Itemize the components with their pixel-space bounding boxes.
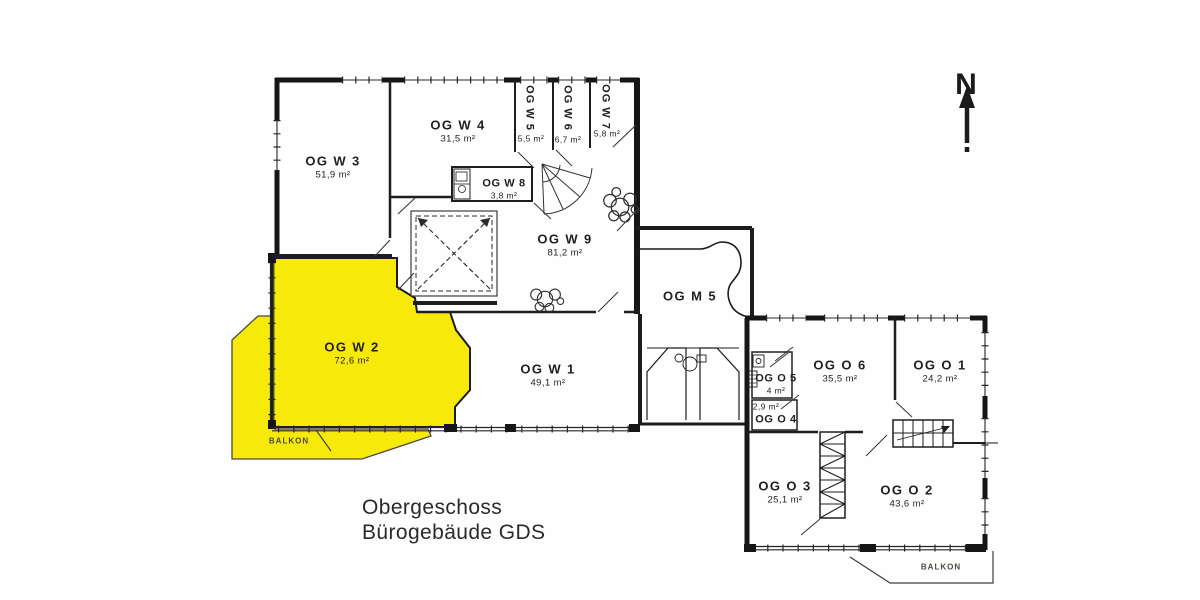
room-label-ogw2: OG W 2 72,6 m² xyxy=(324,341,379,368)
room-name: OG W 2 xyxy=(324,341,379,356)
room-area-ogw5: 5,5 m² xyxy=(518,134,545,145)
balcony-west-label: BALKON xyxy=(269,437,309,446)
plant-icon xyxy=(531,289,564,312)
winder-stair-icon xyxy=(542,164,592,214)
corridor-ogm5 xyxy=(637,228,752,318)
room-area: 72,6 m² xyxy=(324,357,379,368)
north-label: N xyxy=(955,68,977,102)
room-area-ogw7: 5,8 m² xyxy=(594,129,621,140)
stairwell-center xyxy=(640,314,749,424)
room-label-ogo4: OG O 4 xyxy=(755,414,797,427)
room-name: OG W 4 xyxy=(430,119,485,134)
room-area: 31,5 m² xyxy=(430,135,485,146)
plan-title-line1: Obergeschoss xyxy=(362,496,545,521)
room-name: OG W 5 xyxy=(523,85,536,131)
room-area: 5,8 m² xyxy=(594,130,621,140)
room-name: OG W 8 xyxy=(482,177,525,190)
room-label-ogo6: OG O 6 35,5 m² xyxy=(813,359,866,386)
room-label-ogw9: OG W 9 81,2 m² xyxy=(537,233,592,260)
room-area: 43,6 m² xyxy=(880,500,933,511)
atrium-void xyxy=(411,211,497,296)
room-label-ogw6: OG W 6 xyxy=(561,85,574,131)
room-name: OG W 6 xyxy=(561,85,574,131)
room-area: 49,1 m² xyxy=(520,379,575,390)
room-area: 81,2 m² xyxy=(537,249,592,260)
stair-grid xyxy=(893,420,953,447)
room-area-ogo4: 2,9 m² xyxy=(753,402,780,413)
room-label-ogw3: OG W 3 51,9 m² xyxy=(305,155,360,182)
room-name: OG O 5 xyxy=(755,372,797,385)
room-label-ogo3: OG O 3 25,1 m² xyxy=(758,480,811,507)
room-area: 2,9 m² xyxy=(753,403,780,413)
room-area: 5,5 m² xyxy=(518,135,545,145)
room-name: OG W 1 xyxy=(520,363,575,378)
room-area: 6,7 m² xyxy=(555,136,582,146)
room-name: OG O 2 xyxy=(880,484,933,499)
room-area: 3,8 m² xyxy=(482,191,525,201)
room-label-ogw8: OG W 8 3,8 m² xyxy=(482,177,525,200)
room-label-ogw1: OG W 1 49,1 m² xyxy=(520,363,575,390)
balcony-east-label: BALKON xyxy=(921,563,961,572)
room-name: OG M 5 xyxy=(663,290,717,305)
room-label-ogm5: OG M 5 xyxy=(663,290,717,305)
plant-icon xyxy=(604,188,639,222)
room-area: 24,2 m² xyxy=(913,375,966,386)
room-area: 35,5 m² xyxy=(813,375,866,386)
room-area: 51,9 m² xyxy=(305,171,360,182)
stair-ladder xyxy=(820,432,845,518)
room-label-ogw4: OG W 4 31,5 m² xyxy=(430,119,485,146)
room-name: OG W 3 xyxy=(305,155,360,170)
room-name: OG O 1 xyxy=(913,359,966,374)
room-name: OG W 9 xyxy=(537,233,592,248)
room-area-ogw6: 6,7 m² xyxy=(555,135,582,146)
room-name: OG W 7 xyxy=(599,84,612,130)
plan-title: Obergeschoss Bürogebäude GDS xyxy=(362,496,545,546)
room-label-ogw5: OG W 5 xyxy=(523,85,536,131)
room-area: 25,1 m² xyxy=(758,496,811,507)
plan-title-line2: Bürogebäude GDS xyxy=(362,521,545,546)
room-name: OG O 3 xyxy=(758,480,811,495)
room-label-ogo2: OG O 2 43,6 m² xyxy=(880,484,933,511)
room-label-ogo5: OG O 5 4 m² xyxy=(755,372,797,395)
room-label-ogo1: OG O 1 24,2 m² xyxy=(913,359,966,386)
room-name: OG O 6 xyxy=(813,359,866,374)
room-area: 4 m² xyxy=(755,386,797,396)
floor-plan-page: OG W 3 51,9 m² OG W 4 31,5 m² OG W 5 5,5… xyxy=(0,0,1200,600)
room-name: OG O 4 xyxy=(755,414,797,427)
room-label-ogw7: OG W 7 xyxy=(599,84,612,130)
